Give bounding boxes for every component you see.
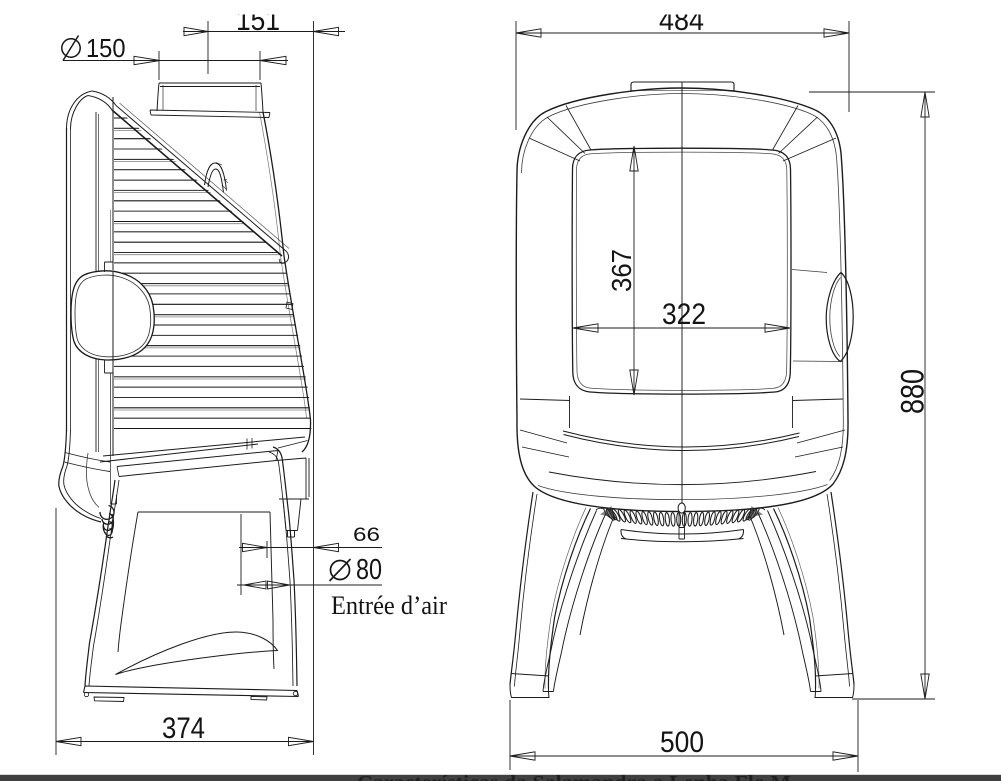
svg-text:880: 880 xyxy=(895,369,931,414)
svg-text:Entrée d’air: Entrée d’air xyxy=(331,591,447,620)
svg-text:Características da Salamandra: Características da Salamandra a Lenha Fl… xyxy=(357,772,791,781)
svg-text:374: 374 xyxy=(162,712,205,745)
svg-text:367: 367 xyxy=(606,249,637,292)
svg-text:80: 80 xyxy=(356,554,382,586)
svg-text:150: 150 xyxy=(86,33,126,63)
svg-text:500: 500 xyxy=(660,726,704,759)
svg-text:66: 66 xyxy=(353,525,380,546)
svg-text:322: 322 xyxy=(662,298,706,331)
